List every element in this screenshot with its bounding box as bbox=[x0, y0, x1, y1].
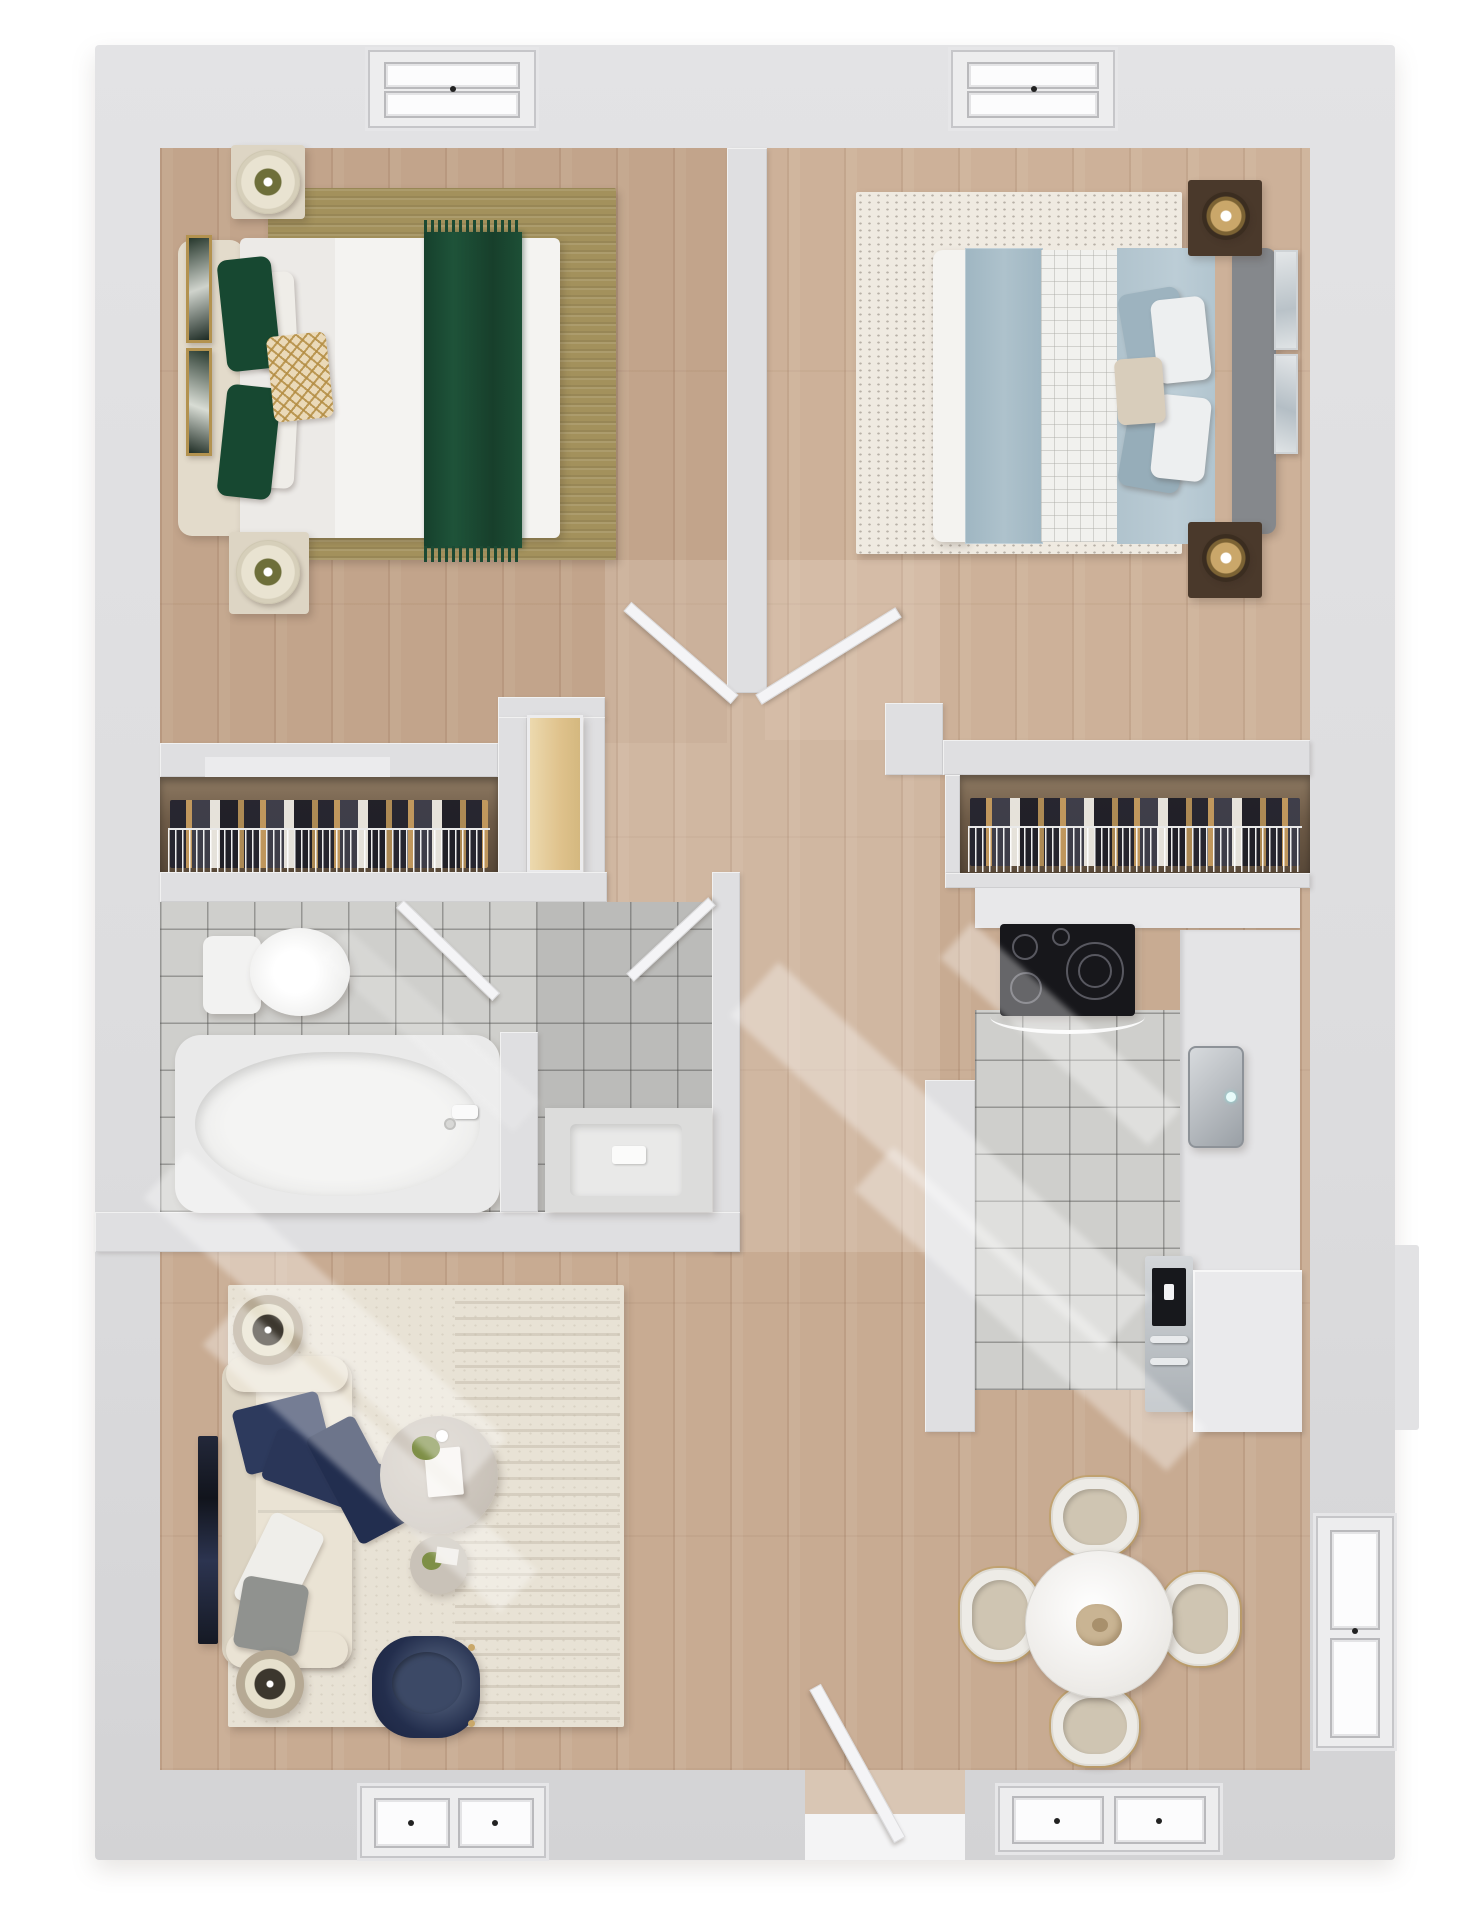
closet-wood-door bbox=[527, 715, 583, 873]
dining-area bbox=[940, 1430, 1310, 1770]
bedroom-1-window-pane-upper bbox=[384, 62, 520, 89]
vanity-soap-dish bbox=[612, 1146, 646, 1164]
bed-2-beige-accent-pillow bbox=[1114, 356, 1166, 425]
side-lamp-bottom bbox=[244, 1658, 296, 1710]
burner-small-1 bbox=[1012, 934, 1038, 960]
bed-1-green-velvet-runner bbox=[424, 232, 522, 548]
right-window-pane-upper bbox=[1330, 1530, 1380, 1630]
dining-right-window bbox=[1316, 1516, 1394, 1748]
wall-art-frame-2b bbox=[1274, 354, 1298, 454]
closet-1-wire-shelf bbox=[168, 828, 490, 874]
bedroom-2-window-pane-lower bbox=[967, 91, 1099, 118]
wall-art-frame-1b bbox=[186, 348, 212, 456]
wall-between-bedrooms bbox=[727, 148, 767, 693]
bed-2-headboard bbox=[1232, 248, 1276, 534]
closet-1-opening-header bbox=[205, 757, 390, 777]
coffee-table-vase bbox=[436, 1430, 448, 1442]
table-lamp-1-bottom bbox=[236, 540, 300, 604]
wall-closet-2-left bbox=[945, 775, 960, 873]
bedroom-2-window-latch bbox=[1031, 86, 1037, 92]
kitchen-faucet bbox=[1226, 1092, 1236, 1102]
dining-window-latch-2 bbox=[1156, 1818, 1162, 1824]
bed-1-trellis-accent-pillow bbox=[266, 331, 335, 423]
bathtub-faucet bbox=[452, 1105, 478, 1119]
gold-lamp-2-top bbox=[1202, 192, 1250, 240]
barrel-chair-gold-leg-1 bbox=[468, 1644, 475, 1651]
right-window-pane-lower bbox=[1330, 1638, 1380, 1738]
dining-chair-right-seat bbox=[1172, 1584, 1228, 1654]
bathroom-partition-wall bbox=[500, 1032, 538, 1212]
bedroom-2-top-window bbox=[951, 50, 1115, 128]
right-wall-bump-out bbox=[1395, 1245, 1419, 1430]
barrel-chair-gold-leg-2 bbox=[468, 1720, 475, 1727]
sofa-cushion-gap bbox=[258, 1510, 350, 1513]
accent-table-card bbox=[435, 1547, 459, 1566]
gray-pillow bbox=[232, 1575, 310, 1657]
bathtub-drain bbox=[444, 1118, 456, 1130]
side-lamp-top bbox=[241, 1303, 295, 1357]
wall-bedroom-2-bottom bbox=[943, 740, 1310, 775]
wall-art-frame-2a bbox=[1274, 250, 1298, 350]
table-lamp-1-top bbox=[236, 150, 300, 214]
toilet-bowl bbox=[250, 928, 350, 1016]
bed-2-herringbone-runner bbox=[965, 248, 1043, 544]
oven-handle-2 bbox=[1150, 1358, 1188, 1365]
wall-bathroom-top bbox=[160, 872, 607, 902]
dining-window-latch-1 bbox=[1054, 1818, 1060, 1824]
burner-small-3 bbox=[1052, 928, 1070, 946]
wall-hall-left bbox=[712, 872, 740, 1252]
bed-2-grid-quilt bbox=[1041, 250, 1119, 542]
dining-chair-top bbox=[1051, 1477, 1139, 1557]
dining-chair-top-seat bbox=[1063, 1489, 1127, 1545]
wall-bathroom-bottom bbox=[95, 1212, 740, 1252]
barrel-chair-cushion bbox=[392, 1652, 462, 1714]
closet-2-wire-shelf bbox=[968, 826, 1302, 872]
burner-large-inner bbox=[1078, 954, 1112, 988]
bedroom-1-window-pane-lower bbox=[384, 91, 520, 118]
bedroom-1-window-latch bbox=[450, 86, 456, 92]
wall-art-frame-1a bbox=[186, 235, 212, 343]
living-window-latch-1 bbox=[408, 1820, 414, 1826]
wall-closet-2-bottom bbox=[945, 873, 1310, 888]
oven-display-light bbox=[1164, 1284, 1174, 1300]
living-window-latch-2 bbox=[492, 1820, 498, 1826]
floor-plan-render bbox=[0, 0, 1476, 1920]
wall-bedroom-2-bottom-stub bbox=[885, 703, 943, 775]
coffee-table-plant bbox=[412, 1436, 440, 1460]
kitchen-top-counter bbox=[975, 888, 1300, 928]
burner-small-2 bbox=[1010, 972, 1042, 1004]
bedroom-1-top-window bbox=[368, 50, 536, 128]
bedroom-2-window-pane-upper bbox=[967, 62, 1099, 89]
living-room-bottom-window bbox=[360, 1786, 546, 1858]
dining-chair-bottom-seat bbox=[1063, 1698, 1127, 1754]
bed-2-sheet-foot bbox=[933, 250, 967, 542]
right-window-latch bbox=[1352, 1628, 1358, 1634]
bedroom-1 bbox=[160, 148, 727, 743]
sofa-arm-top bbox=[226, 1356, 348, 1392]
dining-bottom-window bbox=[998, 1786, 1220, 1852]
oven-handle-1 bbox=[1150, 1336, 1188, 1343]
bathtub-basin bbox=[195, 1052, 480, 1196]
dining-chair-left-seat bbox=[972, 1580, 1028, 1650]
floral-centerpiece-core bbox=[1092, 1618, 1108, 1632]
gold-lamp-2-bottom bbox=[1202, 534, 1250, 582]
bed-1-green-runner-fringe-bottom bbox=[424, 546, 522, 562]
dining-chair-bottom bbox=[1051, 1686, 1139, 1766]
cooktop-front-arc bbox=[990, 1000, 1145, 1034]
wall-mounted-tv bbox=[198, 1436, 218, 1644]
kitchen-lower-cabinet bbox=[1193, 1270, 1302, 1432]
